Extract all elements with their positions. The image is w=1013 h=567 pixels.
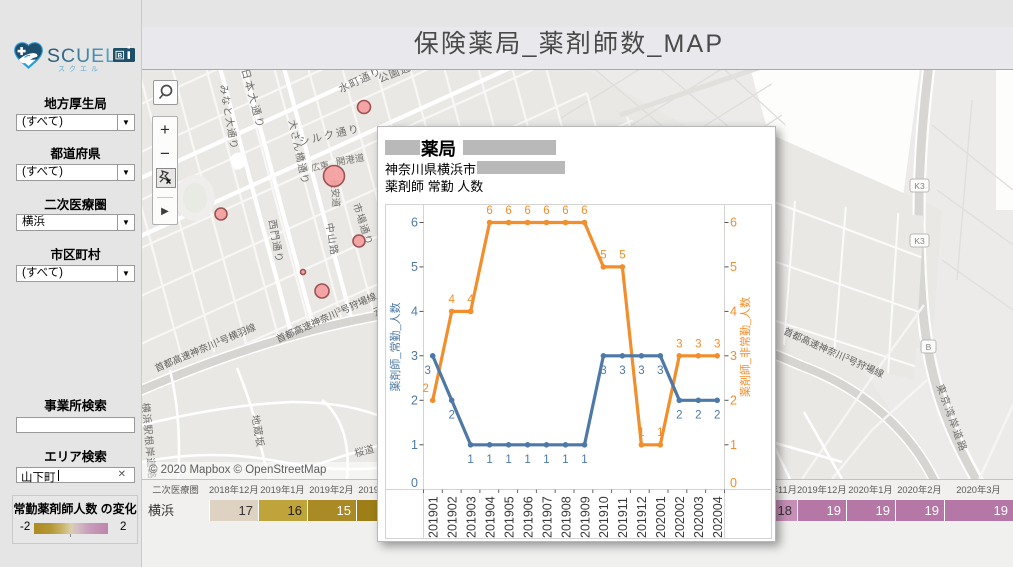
svg-text:1: 1 [638, 427, 644, 439]
svg-text:3: 3 [619, 365, 625, 377]
svg-text:1: 1 [543, 454, 549, 466]
svg-text:3: 3 [424, 365, 430, 377]
svg-text:3: 3 [714, 338, 720, 350]
svg-text:0: 0 [411, 476, 418, 490]
svg-text:201906: 201906 [521, 496, 535, 538]
svg-text:1: 1 [486, 454, 492, 466]
svg-text:201908: 201908 [559, 496, 573, 538]
svg-text:B: B [926, 342, 932, 352]
svg-text:202002: 202002 [673, 496, 687, 538]
svg-text:6: 6 [730, 216, 737, 230]
svg-text:201912: 201912 [635, 496, 649, 538]
svg-text:0: 0 [730, 476, 737, 490]
svg-text:1: 1 [562, 454, 568, 466]
svg-text:3: 3 [411, 349, 418, 363]
svg-text:4: 4 [448, 294, 455, 306]
svg-text:1: 1 [730, 438, 737, 452]
svg-text:3: 3 [676, 338, 682, 350]
svg-text:K3: K3 [914, 236, 925, 246]
svg-text:6: 6 [524, 205, 530, 217]
svg-text:6: 6 [486, 205, 492, 217]
svg-text:201910: 201910 [597, 496, 611, 538]
svg-text:2: 2 [695, 409, 701, 421]
svg-text:3: 3 [695, 338, 701, 350]
svg-text:6: 6 [411, 216, 418, 230]
svg-text:3: 3 [600, 365, 606, 377]
svg-text:薬剤師_非常勤_人数: 薬剤師_非常勤_人数 [738, 297, 752, 397]
svg-text:6: 6 [562, 205, 568, 217]
svg-text:1: 1 [505, 454, 511, 466]
svg-text:2: 2 [714, 409, 720, 421]
svg-text:B: B [117, 52, 122, 59]
svg-text:2: 2 [448, 409, 454, 421]
svg-text:2: 2 [676, 409, 682, 421]
svg-text:201905: 201905 [502, 496, 516, 538]
svg-text:3: 3 [730, 349, 737, 363]
svg-text:6: 6 [543, 205, 549, 217]
svg-text:5: 5 [730, 260, 737, 274]
svg-text:3: 3 [638, 365, 644, 377]
svg-text:2: 2 [422, 383, 428, 395]
svg-text:薬剤師_常勤_人数: 薬剤師_常勤_人数 [388, 302, 402, 391]
svg-text:4: 4 [411, 305, 418, 319]
svg-text:5: 5 [600, 249, 606, 261]
svg-text:1: 1 [581, 454, 587, 466]
svg-text:201903: 201903 [464, 496, 478, 538]
svg-text:K3: K3 [914, 181, 925, 191]
svg-text:1: 1 [524, 454, 530, 466]
svg-text:4: 4 [730, 305, 737, 319]
svg-text:6: 6 [581, 205, 587, 217]
svg-text:3: 3 [657, 365, 663, 377]
svg-text:SCUEL: SCUEL [47, 45, 117, 67]
svg-text:1: 1 [411, 438, 418, 452]
svg-text:201911: 201911 [616, 497, 630, 538]
svg-text:スクエル: スクエル [58, 65, 102, 73]
svg-text:4: 4 [467, 294, 474, 306]
svg-text:2: 2 [411, 394, 418, 408]
svg-text:1: 1 [657, 427, 663, 439]
svg-text:202003: 202003 [692, 496, 706, 538]
svg-text:6: 6 [505, 205, 511, 217]
svg-text:202001: 202001 [654, 496, 668, 538]
svg-text:201907: 201907 [540, 496, 554, 538]
svg-text:201904: 201904 [483, 496, 497, 538]
svg-text:2: 2 [730, 394, 737, 408]
svg-text:202004: 202004 [711, 496, 725, 538]
svg-text:201902: 201902 [446, 496, 460, 538]
svg-text:201901: 201901 [427, 496, 441, 538]
svg-text:5: 5 [619, 249, 625, 261]
svg-text:1: 1 [467, 454, 473, 466]
svg-text:201909: 201909 [578, 496, 592, 538]
svg-text:5: 5 [411, 260, 418, 274]
